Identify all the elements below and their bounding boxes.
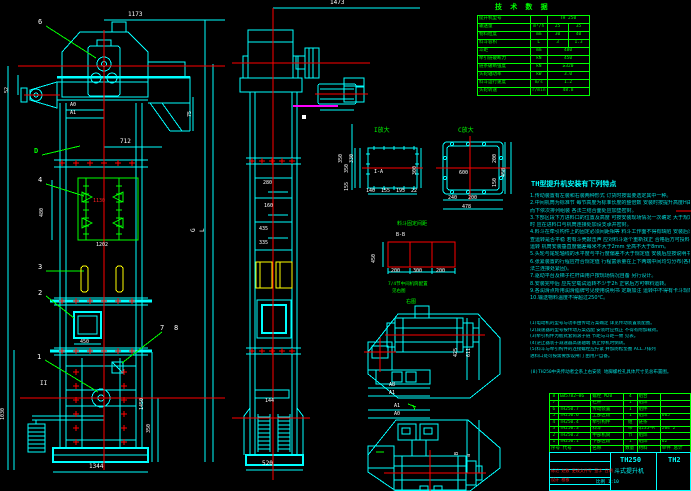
signature-row-labels: 设计 校核 — [551, 478, 569, 482]
tech-cell-value: 3.0 — [547, 72, 589, 80]
dim-l: L — [200, 228, 206, 232]
notes-title: TH型提升机安装有下列特点 — [531, 181, 616, 188]
dim-c-150v: 150 — [493, 178, 498, 187]
tech-row: 头轮轴功率kW3.0 — [478, 72, 590, 80]
dim-i-22: 22 — [411, 189, 417, 194]
dim-c-600: 600 — [459, 171, 468, 176]
scale-value: 1:10 — [608, 481, 619, 486]
tech-row: 提升机型号TH 250 — [478, 16, 590, 24]
left-elevation-cyan — [8, 20, 225, 472]
tech-cell-value: 30 — [547, 32, 568, 40]
tech-cell-label: 输送量 — [478, 24, 531, 32]
tech-row: 料斗运行速度m/s1.2 — [478, 80, 590, 88]
note-line: 运转 机筒安装垂直度偏差每米不大于2mm 全高不大于8mm。 — [530, 244, 690, 251]
selection-grip — [302, 115, 306, 119]
dim-k-300: 300 — [413, 269, 422, 274]
note-line: 查运转是否平稳 若有斗壳敲击声 应对料斗逐个重新找正 合格后方可投料 — [530, 237, 690, 244]
note-line: 时 应在进料口与机筒连接处加设支承并密封。 — [530, 222, 690, 229]
balloon-3: 3 — [38, 264, 42, 271]
tech-cell-label: 牵引链破断力 — [478, 56, 531, 64]
note-sub-line: 进料口处可按需要加设闸门 由用户自备。 — [530, 354, 690, 361]
tech-cell-unit — [531, 16, 548, 24]
config-note-line2: 见右图 — [392, 290, 406, 295]
dim-1130: 1130 — [93, 199, 105, 204]
dim-1030: 1030 — [1, 408, 6, 420]
tech-cell-unit: m³/h — [531, 24, 548, 32]
balloon-8: 8 — [174, 325, 178, 332]
tech-cell-unit: mm — [531, 48, 548, 56]
tech-cell-unit: m/s — [531, 80, 548, 88]
dim-b-a0: A0 — [394, 412, 400, 417]
detail-b-view — [368, 410, 500, 491]
bucket-detail-mark: B-B — [396, 233, 405, 238]
note-line: 4.料斗在牵引构件上的固定必须间距相等 料斗工作面不得有缺陷 安装后须检 — [530, 229, 690, 236]
tech-cell-label: 链条破断强度 — [478, 64, 531, 72]
dim-1450: 1450 — [140, 398, 145, 410]
dim-k-200b: 200 — [436, 269, 445, 274]
config-note-line1: 7/4节中间机筒配置 — [388, 283, 428, 288]
note-line: 法兰连接处紧固)。 — [530, 266, 690, 273]
tech-cell-value: TH 250 — [547, 16, 589, 24]
dim-i-350v: 350 — [345, 164, 350, 173]
dim-c-200v: 200 — [493, 154, 498, 163]
side-elevation-red-centerlines — [232, 8, 370, 480]
tech-cell-label: 头轮轴功率 — [478, 72, 531, 80]
dim-k-450: 450 — [372, 254, 377, 263]
note-line: 9.各润滑点所用润滑脂牌号见使用说明书 定期加注 运转中不得有卡斗现象。 — [530, 288, 690, 295]
dim-280: 280 — [263, 181, 272, 186]
side-elevation-buckets — [256, 262, 292, 288]
dim-i-195: 195 — [396, 189, 405, 194]
dim-1202: 1202 — [96, 243, 108, 248]
tech-cell-unit: kN — [531, 56, 548, 64]
dim-75: 75 — [188, 111, 193, 117]
tech-row: 牵引链破断力kN450 — [478, 56, 590, 64]
dim-k-200a: 200 — [391, 269, 400, 274]
dim-712: 712 — [120, 139, 131, 145]
tech-cell-value: 1.2 — [547, 80, 589, 88]
tech-cell-label: 头轮转速 — [478, 88, 531, 96]
dim-a-611: 611 — [467, 348, 472, 357]
balloon-2: 2 — [38, 290, 42, 297]
detail-i-title: I放大 — [374, 128, 390, 134]
tech-cell-label: 料斗运行速度 — [478, 80, 531, 88]
title-block-gridline — [550, 461, 610, 462]
balloon-4: 4 — [38, 177, 42, 184]
tech-cell-unit: kN — [531, 64, 548, 72]
dim-335: 335 — [259, 241, 268, 246]
dim-g: G — [191, 228, 197, 232]
view-mark-d: D — [34, 148, 38, 155]
note-line: 而下依次排列组装 各法兰结合面处应加垫密封。 — [530, 208, 690, 215]
revision-row-labels: 标记 处数 更改文件号 签字 日期 — [551, 469, 613, 473]
dim-350-left: 350 — [147, 424, 152, 433]
tech-cell-unit: L — [531, 40, 548, 48]
balloon-7: 7 — [160, 325, 164, 332]
bucket-detail-title: 料斗固定间距 — [397, 222, 427, 227]
note-line: 8.安装完毕后 应先空载试运转不少于2h 正常后方可带料运转。 — [530, 281, 690, 288]
dim-c-240: 240 — [448, 196, 457, 201]
dim-a-a1: A1 — [389, 391, 395, 396]
dim-a-a8: A8 — [389, 383, 395, 388]
dim-a-425: 425 — [454, 348, 459, 357]
dim-1344: 1344 — [89, 464, 103, 470]
dim-450-door: 450 — [80, 340, 89, 345]
title-block-drawing-no: TH2 — [668, 457, 681, 464]
tech-cell-value: 1.3 — [568, 40, 589, 48]
tech-row: 斗距mm480 — [478, 48, 590, 56]
dim-b-a: a — [467, 454, 472, 457]
dim-c-478: 478 — [462, 205, 471, 210]
dim-a0: A0 — [70, 103, 76, 108]
detail-right-title: 右图 — [406, 300, 416, 305]
tech-cell-value: ≥320 — [547, 64, 589, 72]
left-elevation-chain-links — [81, 266, 123, 292]
tech-cell-label: 提升机型号 — [478, 16, 531, 24]
title-block-product-name: 斗式提升机 — [614, 469, 644, 475]
tech-cell-value: 40 — [568, 32, 589, 40]
detail-i-mark: I-A — [374, 170, 383, 175]
tech-row: 头轮转速r/min48.8 — [478, 88, 590, 96]
dim-a1: A1 — [70, 111, 76, 116]
balloon-1: 1 — [37, 354, 41, 361]
tech-row: 物料粒度mm3040 — [478, 32, 590, 40]
title-block-model: TH250 — [620, 457, 641, 464]
note-line: 6.张紧装置的行程应符合规定值 行程富余量在上下两端中间均匀分布(各机筒 — [530, 259, 690, 266]
dim-435: 435 — [259, 227, 268, 232]
dim-1473: 1473 — [330, 0, 344, 6]
tech-cell-value: 450 — [547, 56, 589, 64]
left-elevation-red-centerlines — [18, 30, 225, 470]
dim-520: 520 — [262, 461, 273, 467]
dim-c-458v: 458 — [502, 168, 507, 177]
tech-cell-value: 48.8 — [547, 88, 589, 96]
dim-i-155: 155 — [381, 189, 390, 194]
tech-cell-label: 斗距 — [478, 48, 531, 56]
note-footer-line: (8)TH250中央传动者全系上右安装 地脚螺栓孔具体尺寸见总布置图。 — [530, 371, 671, 376]
section-ii-mark: II — [40, 381, 47, 387]
dim-i-155v: 155 — [345, 182, 350, 191]
note-line: 5.头轮与尾轮轴线的水平度与平行度偏差不大于规定值 安装后应按说明书要求 — [530, 251, 690, 258]
dim-head-width: 1173 — [128, 12, 142, 18]
tech-cell-unit: kW — [531, 72, 548, 80]
scale-label: 比例 — [596, 481, 605, 486]
tech-cell-value: 3 — [547, 40, 568, 48]
tech-cell-unit: mm — [531, 32, 548, 40]
note-line: 3.下部区段下方进料口的位置及高度 可按安装现场情况一次确定 大于规定值 — [530, 215, 690, 222]
title-block-divider — [656, 453, 657, 490]
dim-b-b: B — [455, 452, 460, 455]
note-line: 10.输送物料温度不得超过250℃。 — [530, 295, 690, 302]
tech-row: 输送量m³/h2535 — [478, 24, 590, 32]
dim-i-140: 140 — [366, 189, 375, 194]
bom-table: 8GB5782—86螺栓 M204组合 7栏杆1组焊 6TH250.7传动装置1… — [549, 393, 691, 453]
tech-table-title: 技 术 数 据 — [495, 4, 550, 11]
tech-row: 料斗容积L31.3 — [478, 40, 590, 48]
cad-drawing-canvas: 1173 52 A0 A1 712 75 D 480 1130 1202 450… — [0, 0, 691, 491]
tech-cell-unit: r/min — [531, 88, 548, 96]
dim-160: 160 — [264, 204, 273, 209]
dim-b-a1: A1 — [394, 404, 400, 409]
tech-cell-label: 料斗容积 — [478, 40, 531, 48]
technical-data-table: 提升机型号TH 250 输送量m³/h2535 物料粒度mm3040 料斗容积L… — [477, 15, 590, 96]
notes-sub-block: (1)电动机的型号与功率由传动方案确定 详见传动装置装配图。 (2)减速器的型号… — [530, 321, 690, 360]
balloon-6: 6 — [38, 19, 42, 26]
tech-cell-value: 480 — [547, 48, 589, 56]
tech-cell-value: 35 — [568, 24, 589, 32]
detail-c-title: C放大 — [458, 128, 474, 134]
note-line: 2.中间机筒为标准节 每节高度为标准长度的整倍数 安装时按提升高度H由上 — [530, 200, 690, 207]
note-line: 7.驱动平台及梯子栏杆由用户按现场情况自备 另行设计。 — [530, 273, 690, 280]
dim-52: 52 — [5, 87, 10, 93]
note-line: 1.传动装置有左装和右装两种形式 订货时按需要选定其中一种。 — [530, 193, 690, 200]
dim-350-mid: 350 — [339, 154, 344, 163]
dim-480: 480 — [40, 208, 45, 217]
tech-row: 链条破断强度kN≥320 — [478, 64, 590, 72]
tech-cell-label: 物料粒度 — [478, 32, 531, 40]
dim-144: 144 — [265, 399, 274, 404]
dim-330: 330 — [350, 154, 355, 163]
notes-block: 1.传动装置有左装和右装两种形式 订货时按需要选定其中一种。 2.中间机筒为标准… — [530, 193, 690, 302]
dim-i-300v: 300 — [413, 166, 418, 175]
tech-cell-value: 25 — [547, 24, 568, 32]
dim-c-200: 200 — [468, 196, 477, 201]
